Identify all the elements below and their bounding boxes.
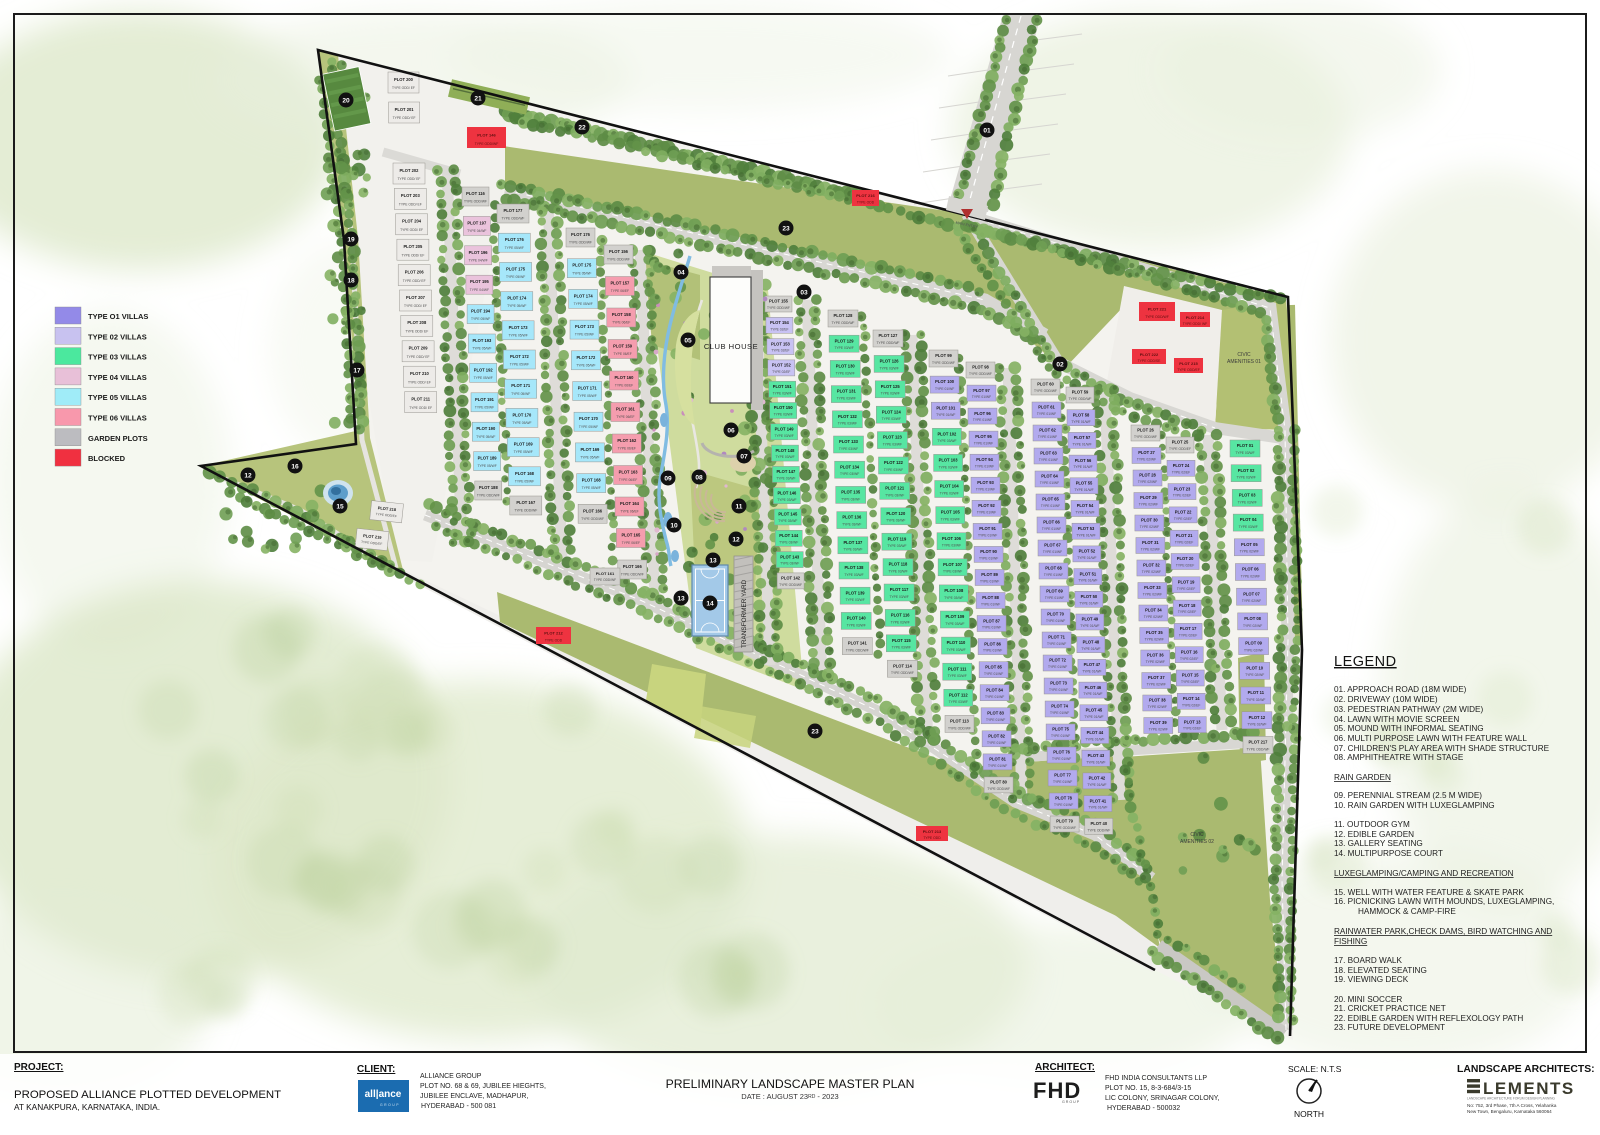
- svg-text:PLOT 96: PLOT 96: [974, 411, 991, 416]
- svg-text:TYPE ODD/ EF: TYPE ODD/ EF: [407, 355, 430, 359]
- svg-text:PLOT 112: PLOT 112: [949, 692, 968, 697]
- svg-text:AMENITIES 02: AMENITIES 02: [1180, 839, 1214, 845]
- svg-text:PLOT 45: PLOT 45: [1086, 708, 1103, 713]
- svg-text:PLOT 171: PLOT 171: [511, 383, 531, 388]
- svg-text:TYPE 04/WF: TYPE 04/WF: [467, 229, 486, 233]
- svg-text:TYPE 05/WF: TYPE 05/WF: [512, 421, 531, 425]
- svg-text:PLOT 05: PLOT 05: [1241, 542, 1258, 547]
- svg-text:PLOT 88: PLOT 88: [982, 595, 999, 600]
- svg-text:PLOT 117: PLOT 117: [890, 587, 909, 592]
- svg-text:TYPE 02/WF: TYPE 02/WF: [1146, 660, 1165, 664]
- svg-text:TYPE 03/WF: TYPE 03/WF: [775, 455, 794, 459]
- svg-text:PLOT 136: PLOT 136: [842, 515, 862, 520]
- svg-text:PLOT 222: PLOT 222: [1140, 352, 1159, 357]
- svg-text:PLOT 176: PLOT 176: [571, 232, 591, 237]
- svg-text:PLOT 07: PLOT 07: [1243, 591, 1260, 596]
- svg-text:TYPE ODD/ WF: TYPE ODD/ WF: [1183, 322, 1208, 326]
- svg-text:PLOT 174: PLOT 174: [507, 296, 527, 301]
- svg-text:PLOT 221: PLOT 221: [1148, 307, 1167, 312]
- svg-text:TYPE 01/WF: TYPE 01/WF: [972, 395, 991, 399]
- svg-text:TYPE 03/WF: TYPE 03/WF: [774, 413, 793, 417]
- svg-text:TYPE 01/WF: TYPE 01/WF: [978, 534, 997, 538]
- svg-text:TYPE 03/WF: TYPE 03/WF: [882, 417, 901, 421]
- svg-text:LANDSCAPE ARCHITECTURE FORUM: LANDSCAPE ARCHITECTURE FORUM DESIGN PLAN…: [1467, 1097, 1555, 1101]
- svg-text:TYPE 01/WF: TYPE 01/WF: [1083, 692, 1102, 696]
- svg-text:06: 06: [727, 427, 735, 434]
- svg-text:PLOT 154: PLOT 154: [770, 320, 790, 325]
- svg-text:TYPE 05/WF: TYPE 05/WF: [572, 271, 591, 275]
- svg-text:PLOT 70: PLOT 70: [1047, 612, 1064, 617]
- svg-text:TYPE 03/WF: TYPE 03/WF: [938, 465, 957, 469]
- svg-text:PLOT 194: PLOT 194: [471, 309, 491, 314]
- svg-text:TYPE 06/EF: TYPE 06/EF: [620, 510, 638, 514]
- svg-text:TYPE ODD: TYPE ODD: [923, 836, 941, 840]
- svg-text:PLOT 69: PLOT 69: [1046, 589, 1063, 594]
- svg-text:TYPE 02/EF: TYPE 02/EF: [1178, 610, 1196, 614]
- svg-text:PLOT 145: PLOT 145: [778, 512, 798, 517]
- svg-text:PLOT 41: PLOT 41: [1090, 798, 1107, 803]
- svg-text:PLOT 158: PLOT 158: [612, 312, 632, 317]
- svg-text:TYPE 03/WF: TYPE 03/WF: [834, 346, 853, 350]
- svg-text:TYPE 02/EF: TYPE 02/EF: [1182, 703, 1200, 707]
- svg-text:TYPE 02/EF: TYPE 02/EF: [1181, 680, 1199, 684]
- svg-text:TYPE 03/WF: TYPE 03/WF: [945, 622, 964, 626]
- svg-text:PLOT 190: PLOT 190: [476, 426, 496, 431]
- svg-text:TYPE ODD/ EF: TYPE ODD/ EF: [409, 406, 432, 410]
- svg-text:03. PEDESTRIAN PATHWAY (2M WI: 03. PEDESTRIAN PATHWAY (2M WIDE): [1334, 705, 1483, 714]
- svg-text:TYPE 01/WF: TYPE 01/WF: [974, 441, 993, 445]
- svg-text:TYPE 05/WF: TYPE 05/WF: [475, 405, 494, 409]
- svg-text:PLOT 12: PLOT 12: [1249, 715, 1266, 720]
- svg-text:TYPE 01/WF: TYPE 01/WF: [936, 413, 955, 417]
- svg-text:TYPE ODD/WF: TYPE ODD/WF: [948, 726, 971, 730]
- svg-text:PLOT 170: PLOT 170: [579, 416, 599, 421]
- svg-text:BLOCKED: BLOCKED: [88, 454, 126, 463]
- svg-text:TYPE 01/WF: TYPE 01/WF: [979, 557, 998, 561]
- svg-text:PLOT 14: PLOT 14: [1183, 696, 1200, 701]
- svg-text:PLOT 152: PLOT 152: [772, 363, 792, 368]
- svg-text:TYPE 05/WF: TYPE 05/WF: [578, 394, 597, 398]
- svg-text:PLOT 03: PLOT 03: [1239, 493, 1256, 498]
- svg-text:PLOT 72: PLOT 72: [1049, 658, 1066, 663]
- svg-text:TYPE 05/WF: TYPE 05/WF: [574, 302, 593, 306]
- svg-text:19: 19: [347, 236, 355, 243]
- svg-text:TYPE 03 VILLAS: TYPE 03 VILLAS: [88, 353, 147, 362]
- svg-text:TYPE 02/WF: TYPE 02/WF: [1140, 525, 1159, 529]
- svg-text:21. CRICKET PRACTICE NET: 21. CRICKET PRACTICE NET: [1334, 1004, 1446, 1013]
- svg-text:TYPE 01/WF: TYPE 01/WF: [985, 695, 1004, 699]
- svg-text:PLOT 40: PLOT 40: [1090, 821, 1107, 826]
- svg-text:PLOT 217: PLOT 217: [1249, 740, 1269, 745]
- svg-text:TYPE 01/WF: TYPE 01/WF: [973, 418, 992, 422]
- svg-text:PLOT 30: PLOT 30: [1141, 518, 1158, 523]
- svg-text:TYPE 03/WF: TYPE 03/WF: [891, 620, 910, 624]
- svg-text:23. FUTURE DEVELOPMENT: 23. FUTURE DEVELOPMENT: [1334, 1023, 1445, 1032]
- svg-text:PLOT 73: PLOT 73: [1050, 681, 1067, 686]
- svg-text:TYPE 03/WF: TYPE 03/WF: [943, 570, 962, 574]
- svg-text:TYPE 05/WF: TYPE 05/WF: [579, 425, 598, 429]
- svg-text:TYPE ODD/WF: TYPE ODD/WF: [569, 241, 592, 245]
- svg-text:TYPE 02/EF: TYPE 02/EF: [1183, 727, 1201, 731]
- svg-text:TYPE 02/WF: TYPE 02/WF: [1148, 705, 1167, 709]
- svg-text:PLOT 105: PLOT 105: [941, 510, 961, 515]
- svg-text:TYPE ODD/ EF: TYPE ODD/ EF: [398, 177, 421, 181]
- svg-text:PLOT 205: PLOT 205: [403, 244, 423, 249]
- svg-text:JUBILEE ENCLAVE, MADHAPUR,: JUBILEE ENCLAVE, MADHAPUR,: [420, 1093, 528, 1100]
- svg-text:PLOT 170: PLOT 170: [512, 412, 532, 417]
- svg-text:TYPE 01/WF: TYPE 01/WF: [1047, 642, 1066, 646]
- svg-text:PLOT 168: PLOT 168: [582, 478, 602, 483]
- svg-text:PLOT 79: PLOT 79: [1056, 819, 1073, 824]
- svg-text:PLOT 106: PLOT 106: [942, 536, 962, 541]
- svg-text:PLOT 118: PLOT 118: [889, 562, 908, 567]
- svg-text:PLOT 68: PLOT 68: [1045, 566, 1062, 571]
- svg-text:PLOT 135: PLOT 135: [841, 490, 861, 495]
- svg-text:PLOT 27: PLOT 27: [1138, 450, 1155, 455]
- svg-text:01: 01: [983, 127, 991, 134]
- svg-text:TYPE 03/WF: TYPE 03/WF: [944, 596, 963, 600]
- svg-text:TYPE 02/EF: TYPE 02/EF: [1174, 517, 1192, 521]
- svg-text:TYPE 06/EF: TYPE 06/EF: [622, 541, 640, 545]
- svg-text:DATE : AUGUST 23RD - 2023: DATE : AUGUST 23RD - 2023: [741, 1092, 838, 1101]
- svg-text:PLOT 59: PLOT 59: [1072, 390, 1089, 395]
- svg-text:PLOT 53: PLOT 53: [1078, 526, 1095, 531]
- svg-text:TYPE 03/WF: TYPE 03/WF: [780, 562, 799, 566]
- svg-text:PLOT 102: PLOT 102: [937, 431, 957, 436]
- svg-text:PLOT 75: PLOT 75: [1052, 727, 1069, 732]
- svg-text:TYPE 03/WF: TYPE 03/WF: [942, 544, 961, 548]
- svg-text:TYPE 02/WF: TYPE 02/WF: [1142, 570, 1161, 574]
- svg-text:AMENITIES 01: AMENITIES 01: [1227, 359, 1261, 365]
- svg-text:PLOT 29: PLOT 29: [1140, 495, 1157, 500]
- svg-text:PLOT 58: PLOT 58: [1073, 412, 1090, 417]
- svg-text:PLOT 24: PLOT 24: [1173, 463, 1190, 468]
- svg-text:AT KANAKPURA, KARNATAKA, INDIA: AT KANAKPURA, KARNATAKA, INDIA.: [14, 1102, 160, 1112]
- svg-text:TYPE 03/WF: TYPE 03/WF: [946, 648, 965, 652]
- svg-text:PRELIMINARY LANDSCAPE MASTER P: PRELIMINARY LANDSCAPE MASTER PLAN: [666, 1077, 915, 1091]
- svg-text:PLOT 49: PLOT 49: [1082, 617, 1099, 622]
- svg-text:TYPE ODD/WF: TYPE ODD/WF: [1087, 828, 1110, 832]
- svg-text:TYPE 03/WF: TYPE 03/WF: [843, 548, 862, 552]
- svg-text:PLOT 38: PLOT 38: [1149, 698, 1166, 703]
- svg-text:PLOT 212: PLOT 212: [544, 631, 563, 636]
- svg-text:PLOT 108: PLOT 108: [944, 588, 964, 593]
- svg-text:TYPE ODD/WF: TYPE ODD/WF: [502, 217, 525, 221]
- svg-text:PLOT 57: PLOT 57: [1074, 435, 1091, 440]
- svg-text:PLOT 55: PLOT 55: [1076, 481, 1093, 486]
- svg-text:PLOT 174: PLOT 174: [574, 293, 594, 298]
- svg-text:TYPE 03/WF: TYPE 03/WF: [841, 497, 860, 501]
- svg-text:PLOT 31: PLOT 31: [1142, 540, 1159, 545]
- svg-text:PLOT 173: PLOT 173: [575, 324, 595, 329]
- svg-text:TYPE 02/EF: TYPE 02/EF: [771, 349, 789, 353]
- svg-text:CIVIC: CIVIC: [1190, 832, 1204, 838]
- svg-text:TYPE 03/WF: TYPE 03/WF: [886, 519, 905, 523]
- svg-text:PLOT 132: PLOT 132: [838, 414, 858, 419]
- svg-text:TYPE 03/WF: TYPE 03/WF: [889, 595, 908, 599]
- svg-text:PLOT 156: PLOT 156: [609, 249, 629, 254]
- svg-text:PLOT 78: PLOT 78: [1055, 796, 1072, 801]
- svg-text:PLOT 195: PLOT 195: [470, 279, 490, 284]
- svg-text:PLOT 177: PLOT 177: [504, 208, 524, 213]
- svg-text:PLOT 162: PLOT 162: [617, 438, 637, 443]
- svg-text:TYPE 05/WF: TYPE 05/WF: [580, 456, 599, 460]
- svg-text:TYPE 01/WF: TYPE 01/WF: [1037, 412, 1056, 416]
- svg-text:TYPE 01/WF: TYPE 01/WF: [1041, 504, 1060, 508]
- svg-text:PLOT 134: PLOT 134: [840, 464, 860, 469]
- svg-text:PLOT 166: PLOT 166: [623, 564, 643, 569]
- svg-text:TYPE 01/WF: TYPE 01/WF: [1046, 619, 1065, 623]
- svg-text:TYPE 04/WF: TYPE 04/WF: [468, 258, 487, 262]
- svg-text:PLOT 124: PLOT 124: [882, 409, 902, 414]
- svg-text:TYPE 01/WF: TYPE 01/WF: [986, 718, 1005, 722]
- svg-text:TYPE 01/WF: TYPE 01/WF: [1071, 420, 1090, 424]
- svg-text:14: 14: [706, 600, 714, 607]
- svg-text:10: 10: [670, 522, 678, 529]
- svg-text:FISHING: FISHING: [1334, 937, 1367, 946]
- svg-text:TYPE ODD/WF: TYPE ODD/WF: [477, 494, 500, 498]
- svg-text:TYPE 03/WF: TYPE 03/WF: [892, 646, 911, 650]
- svg-text:LANDSCAPE ARCHITECTS:: LANDSCAPE ARCHITECTS:: [1457, 1064, 1595, 1075]
- svg-text:PLOT 193: PLOT 193: [472, 338, 492, 343]
- svg-text:TYPE 01/WF: TYPE 01/WF: [1085, 738, 1104, 742]
- svg-text:16: 16: [291, 463, 299, 470]
- svg-text:PLOT 71: PLOT 71: [1048, 635, 1065, 640]
- svg-text:PLOT 203: PLOT 203: [401, 193, 421, 198]
- svg-text:PLOT 175: PLOT 175: [506, 266, 526, 271]
- svg-text:TYPE 02/EF: TYPE 02/EF: [1177, 587, 1195, 591]
- svg-text:PLOT 114: PLOT 114: [893, 663, 912, 668]
- svg-text:PLOT 04: PLOT 04: [1240, 517, 1257, 522]
- svg-text:TYPE 02/WF: TYPE 02/WF: [1137, 458, 1156, 462]
- svg-text:TYPE 01/WF: TYPE 01/WF: [1074, 488, 1093, 492]
- svg-text:PLOT 166: PLOT 166: [583, 508, 603, 513]
- svg-text:TYPE 02/EF: TYPE 02/EF: [1175, 540, 1193, 544]
- svg-text:PLOT 100: PLOT 100: [935, 379, 955, 384]
- svg-text:TYPE 01/WF: TYPE 01/WF: [1040, 481, 1059, 485]
- svg-text:PLOT 15: PLOT 15: [1182, 673, 1199, 678]
- svg-text:TYPE 05/WF: TYPE 05/WF: [505, 246, 524, 250]
- svg-text:TYPE ODD/ EF: TYPE ODD/ EF: [403, 279, 426, 283]
- svg-text:TYPE 03/WF: TYPE 03/WF: [885, 493, 904, 497]
- svg-text:TYPE 01/WF: TYPE 01/WF: [1052, 757, 1071, 761]
- svg-text:TYPE 01/WF: TYPE 01/WF: [1053, 780, 1072, 784]
- svg-text:PLOT 146: PLOT 146: [477, 132, 496, 137]
- svg-text:PLOT 159: PLOT 159: [613, 344, 633, 349]
- svg-text:PLOT 35: PLOT 35: [1146, 630, 1163, 635]
- svg-text:TYPE 03/WF: TYPE 03/WF: [883, 443, 902, 447]
- svg-text:TYPE 03/WF: TYPE 03/WF: [1236, 476, 1255, 480]
- svg-text:PLOT 80: PLOT 80: [990, 780, 1007, 785]
- svg-text:PLOT 147: PLOT 147: [776, 469, 796, 474]
- svg-text:PLOT 33: PLOT 33: [1144, 585, 1161, 590]
- svg-text:TYPE 01/WF: TYPE 01/WF: [983, 649, 1002, 653]
- svg-text:TYPE 01/WF: TYPE 01/WF: [1048, 665, 1067, 669]
- svg-text:PLOT 94: PLOT 94: [976, 457, 993, 462]
- svg-text:TYPE ODD/ EF: TYPE ODD/ EF: [405, 330, 428, 334]
- svg-text:PLOT 144: PLOT 144: [779, 533, 799, 538]
- svg-text:PLOT 130: PLOT 130: [836, 364, 856, 369]
- svg-text:PLOT 76: PLOT 76: [1053, 750, 1070, 755]
- svg-text:PLOT 116: PLOT 116: [891, 613, 910, 618]
- svg-text:PLOT 121: PLOT 121: [885, 486, 905, 491]
- svg-text:13: 13: [709, 557, 717, 564]
- svg-text:PLOT 82: PLOT 82: [988, 734, 1005, 739]
- svg-text:TYPE ODD/WF: TYPE ODD/WF: [1034, 389, 1057, 393]
- svg-text:PLOT 201: PLOT 201: [395, 107, 415, 112]
- svg-text:TYPE ODD: TYPE ODD: [545, 638, 563, 642]
- svg-text:TYPE 01/WF: TYPE 01/WF: [1077, 556, 1096, 560]
- svg-text:TYPE 05/WF: TYPE 05/WF: [514, 450, 533, 454]
- svg-text:PLOT 84: PLOT 84: [986, 687, 1003, 692]
- svg-text:PLOT 150: PLOT 150: [774, 405, 794, 410]
- svg-text:09: 09: [664, 475, 672, 482]
- svg-text:20: 20: [342, 97, 350, 104]
- svg-text:13: 13: [677, 595, 685, 602]
- svg-text:PLOT 123: PLOT 123: [883, 435, 903, 440]
- svg-text:PLOT 138: PLOT 138: [845, 565, 865, 570]
- svg-text:PLOT 19: PLOT 19: [1178, 580, 1195, 585]
- svg-text:PLOT 44: PLOT 44: [1087, 730, 1104, 735]
- svg-text:TYPE 05/WF: TYPE 05/WF: [511, 392, 530, 396]
- svg-text:PLOT 99: PLOT 99: [935, 353, 952, 358]
- svg-text:TYPE 02/WF: TYPE 02/WF: [1141, 548, 1160, 552]
- svg-text:PLOT 161: PLOT 161: [596, 571, 615, 576]
- svg-text:PLOT 192: PLOT 192: [474, 367, 494, 372]
- svg-text:PLOT 175: PLOT 175: [572, 263, 592, 268]
- svg-text:TYPE 02/WF: TYPE 02/WF: [1240, 550, 1259, 554]
- svg-text:05. MOUND WITH INFORMAL SEATI: 05. MOUND WITH INFORMAL SEATING: [1334, 724, 1484, 733]
- svg-text:PLOT 46: PLOT 46: [1085, 685, 1102, 690]
- svg-text:PLOT 143: PLOT 143: [780, 554, 800, 559]
- svg-text:PLOT 202: PLOT 202: [400, 168, 420, 173]
- svg-text:PLOT 51: PLOT 51: [1080, 571, 1097, 576]
- svg-text:TYPE 02/EF: TYPE 02/EF: [772, 370, 790, 374]
- svg-text:TYPE 01/WF: TYPE 01/WF: [1050, 711, 1069, 715]
- svg-text:PLOT 120: PLOT 120: [886, 511, 906, 516]
- svg-text:PLOT 37: PLOT 37: [1148, 675, 1165, 680]
- svg-text:02: 02: [1056, 361, 1064, 368]
- svg-text:TYPE 01/WF: TYPE 01/WF: [975, 464, 994, 468]
- svg-text:TYPE 02 VILLAS: TYPE 02 VILLAS: [88, 332, 147, 341]
- svg-text:TYPE 03/WF: TYPE 03/WF: [836, 371, 855, 375]
- svg-text:TYPE 03/WF: TYPE 03/WF: [773, 391, 792, 395]
- svg-text:18: 18: [347, 277, 355, 284]
- svg-text:TYPE ODD/WF: TYPE ODD/WF: [1069, 397, 1092, 401]
- svg-text:PLOT 204: PLOT 204: [402, 219, 422, 224]
- svg-text:18. ELEVATED SEATING: 18. ELEVATED SEATING: [1334, 966, 1427, 975]
- svg-text:TYPE 02/WF: TYPE 02/WF: [1143, 593, 1162, 597]
- svg-text:TYPE 03/WF: TYPE 03/WF: [1239, 525, 1258, 529]
- svg-text:PLOT 140: PLOT 140: [847, 616, 867, 621]
- svg-text:10. RAIN GARDEN WITH LUXEGLAM: 10. RAIN GARDEN WITH LUXEGLAMPING: [1334, 801, 1495, 810]
- svg-text:TYPE 01/WF: TYPE 01/WF: [1081, 647, 1100, 651]
- svg-text:SCALE: N.T.S: SCALE: N.T.S: [1288, 1064, 1342, 1074]
- svg-text:PLOT 109: PLOT 109: [945, 614, 965, 619]
- svg-text:TYPE 03/WF: TYPE 03/WF: [779, 540, 798, 544]
- svg-text:04. LAWN WITH MOVIE SCREEN: 04. LAWN WITH MOVIE SCREEN: [1334, 715, 1459, 724]
- svg-text:PLOT 26: PLOT 26: [1137, 428, 1154, 433]
- svg-text:TYPE 02/WF: TYPE 02/WF: [1246, 698, 1265, 702]
- svg-text:PLOT 164: PLOT 164: [620, 501, 640, 506]
- svg-text:PLOT 66: PLOT 66: [1043, 520, 1060, 525]
- svg-text:PLOT 146: PLOT 146: [777, 490, 797, 495]
- svg-text:TYPE 05/WF: TYPE 05/WF: [510, 363, 529, 367]
- svg-text:RAINWATER PARK,CHECK DAMS, BIR: RAINWATER PARK,CHECK DAMS, BIRD WATCHING…: [1334, 927, 1552, 936]
- svg-text:TYPE 06/EF: TYPE 06/EF: [616, 415, 634, 419]
- svg-text:TYPE 04 VILLAS: TYPE 04 VILLAS: [88, 373, 147, 382]
- svg-text:TYPE 01/WF: TYPE 01/WF: [1076, 533, 1095, 537]
- svg-text:TYPE 01/WF: TYPE 01/WF: [1086, 760, 1105, 764]
- svg-text:07. CHILDREN'S PLAY AREA WITH: 07. CHILDREN'S PLAY AREA WITH SHADE STRU…: [1334, 744, 1550, 753]
- svg-text:TYPE 01/WF: TYPE 01/WF: [1087, 783, 1106, 787]
- svg-text:PLOT 172: PLOT 172: [510, 354, 530, 359]
- svg-text:CLIENT:: CLIENT:: [357, 1064, 395, 1075]
- svg-text:TYPE ODD/WF: TYPE ODD/WF: [464, 200, 487, 204]
- svg-text:TYPE 02/EF: TYPE 02/EF: [1180, 657, 1198, 661]
- svg-text:PLOT 62: PLOT 62: [1039, 428, 1056, 433]
- svg-text:22: 22: [578, 124, 586, 131]
- svg-text:PLOT 141: PLOT 141: [848, 641, 868, 646]
- svg-text:PLOT 23: PLOT 23: [1174, 486, 1191, 491]
- svg-text:TYPE 02/WF: TYPE 02/WF: [1149, 728, 1168, 732]
- svg-text:TYPE ODD/WF: TYPE ODD/WF: [969, 372, 992, 376]
- svg-text:TYPE 01/WF: TYPE 01/WF: [1039, 458, 1058, 462]
- svg-text:PLOT 213: PLOT 213: [923, 829, 942, 834]
- svg-text:PLOT 167: PLOT 167: [516, 500, 536, 505]
- svg-text:TYPE 02/EF: TYPE 02/EF: [1179, 634, 1197, 638]
- svg-text:PLOT 113: PLOT 113: [950, 719, 969, 724]
- svg-text:TYPE ODD/WF: TYPE ODD/WF: [514, 509, 537, 513]
- svg-text:PLOT 137: PLOT 137: [843, 540, 863, 545]
- svg-text:14. MULTIPURPOSE COURT: 14. MULTIPURPOSE COURT: [1334, 849, 1443, 858]
- svg-text:PLOT 65: PLOT 65: [1042, 497, 1059, 502]
- svg-text:LEGEND: LEGEND: [1334, 654, 1397, 670]
- svg-text:TYPE 05/WF: TYPE 05/WF: [506, 275, 525, 279]
- svg-text:PLOT 127: PLOT 127: [879, 333, 899, 338]
- svg-text:LIC COLONY, SRINAGAR COLONY,: LIC COLONY, SRINAGAR COLONY,: [1105, 1095, 1220, 1102]
- svg-text:TYPE ODD/ EF: TYPE ODD/ EF: [404, 304, 427, 308]
- svg-text:PLOT 36: PLOT 36: [1147, 653, 1164, 658]
- svg-text:TYPE ODD/WF: TYPE ODD/WF: [846, 649, 869, 653]
- svg-text:TYPE ODD/ EF: TYPE ODD/ EF: [399, 203, 422, 207]
- svg-text:PLOT 139: PLOT 139: [846, 590, 866, 595]
- svg-text:TYPE 01/WF: TYPE 01/WF: [1043, 550, 1062, 554]
- svg-text:TYPE ODD/WF: TYPE ODD/WF: [932, 361, 955, 365]
- svg-text:TYPE 02/WF: TYPE 02/WF: [1244, 649, 1263, 653]
- svg-text:TYPE ODD/WF: TYPE ODD/WF: [832, 321, 855, 325]
- svg-text:TYPE 02/WF: TYPE 02/WF: [1247, 723, 1266, 727]
- svg-text:PLOT 151: PLOT 151: [773, 384, 793, 389]
- svg-text:TYPE 03/WF: TYPE 03/WF: [847, 623, 866, 627]
- svg-text:PLOT 215: PLOT 215: [1179, 361, 1198, 366]
- svg-text:13. GALLERY SEATING: 13. GALLERY SEATING: [1334, 839, 1423, 848]
- svg-text:LUXEGLAMPING/CAMPING AND RECRE: LUXEGLAMPING/CAMPING AND RECREATION: [1334, 869, 1514, 878]
- svg-text:GROUP: GROUP: [380, 1103, 400, 1107]
- svg-text:TYPE 03/WF: TYPE 03/WF: [844, 573, 863, 577]
- svg-text:TYPE ODD/EF: TYPE ODD/EF: [1177, 368, 1200, 372]
- svg-text:HYDERABAD - 500 081: HYDERABAD - 500 081: [421, 1103, 496, 1110]
- svg-text:TYPE 05/WF: TYPE 05/WF: [576, 363, 595, 367]
- svg-text:TYPE ODD/WF: TYPE ODD/WF: [475, 142, 499, 146]
- svg-text:TYPE 05/WF: TYPE 05/WF: [575, 333, 594, 337]
- svg-text:TYPE 01/WF: TYPE 01/WF: [1079, 601, 1098, 605]
- svg-text:PLOT 161: PLOT 161: [616, 407, 636, 412]
- svg-text:11. OUTDOOR GYM: 11. OUTDOOR GYM: [1334, 820, 1410, 829]
- svg-text:TYPE 05/WF: TYPE 05/WF: [508, 333, 527, 337]
- svg-text:TYPE 06/EF: TYPE 06/EF: [615, 384, 633, 388]
- svg-text:TYPE 03/WF: TYPE 03/WF: [838, 422, 857, 426]
